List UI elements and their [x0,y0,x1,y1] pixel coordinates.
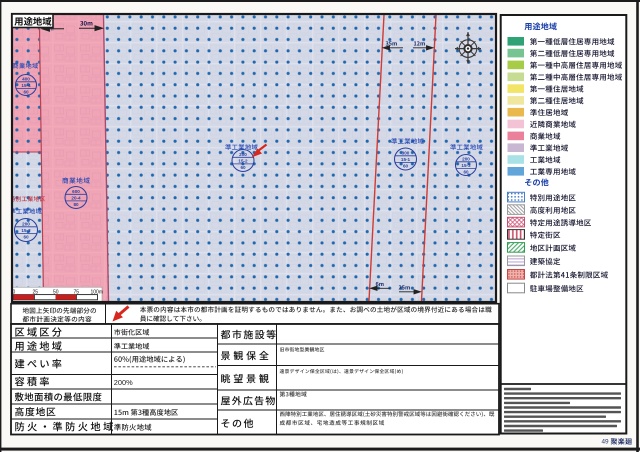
svg-text:20-4: 20-4 [71,195,81,200]
svg-text:300: 300 [402,150,410,155]
svg-text:200: 200 [22,221,30,226]
svg-text:15-1: 15-1 [401,157,411,162]
svg-text:60: 60 [403,164,409,169]
svg-text:60: 60 [463,170,469,175]
svg-text:60: 60 [23,235,29,240]
svg-text:15-4: 15-4 [21,83,31,88]
svg-text:80: 80 [73,202,79,207]
svg-text:15-2: 15-2 [238,158,248,163]
svg-text:60: 60 [23,90,29,95]
svg-text:200: 200 [462,156,470,161]
svg-text:200%: 200% [114,378,133,387]
svg-text:15-3: 15-3 [21,228,31,233]
svg-text:49: 49 [602,439,610,446]
svg-text:15-3: 15-3 [461,163,471,168]
svg-text:400: 400 [22,76,30,81]
svg-text:200: 200 [239,152,247,157]
svg-text:60: 60 [240,165,246,170]
svg-text:600: 600 [72,189,80,194]
